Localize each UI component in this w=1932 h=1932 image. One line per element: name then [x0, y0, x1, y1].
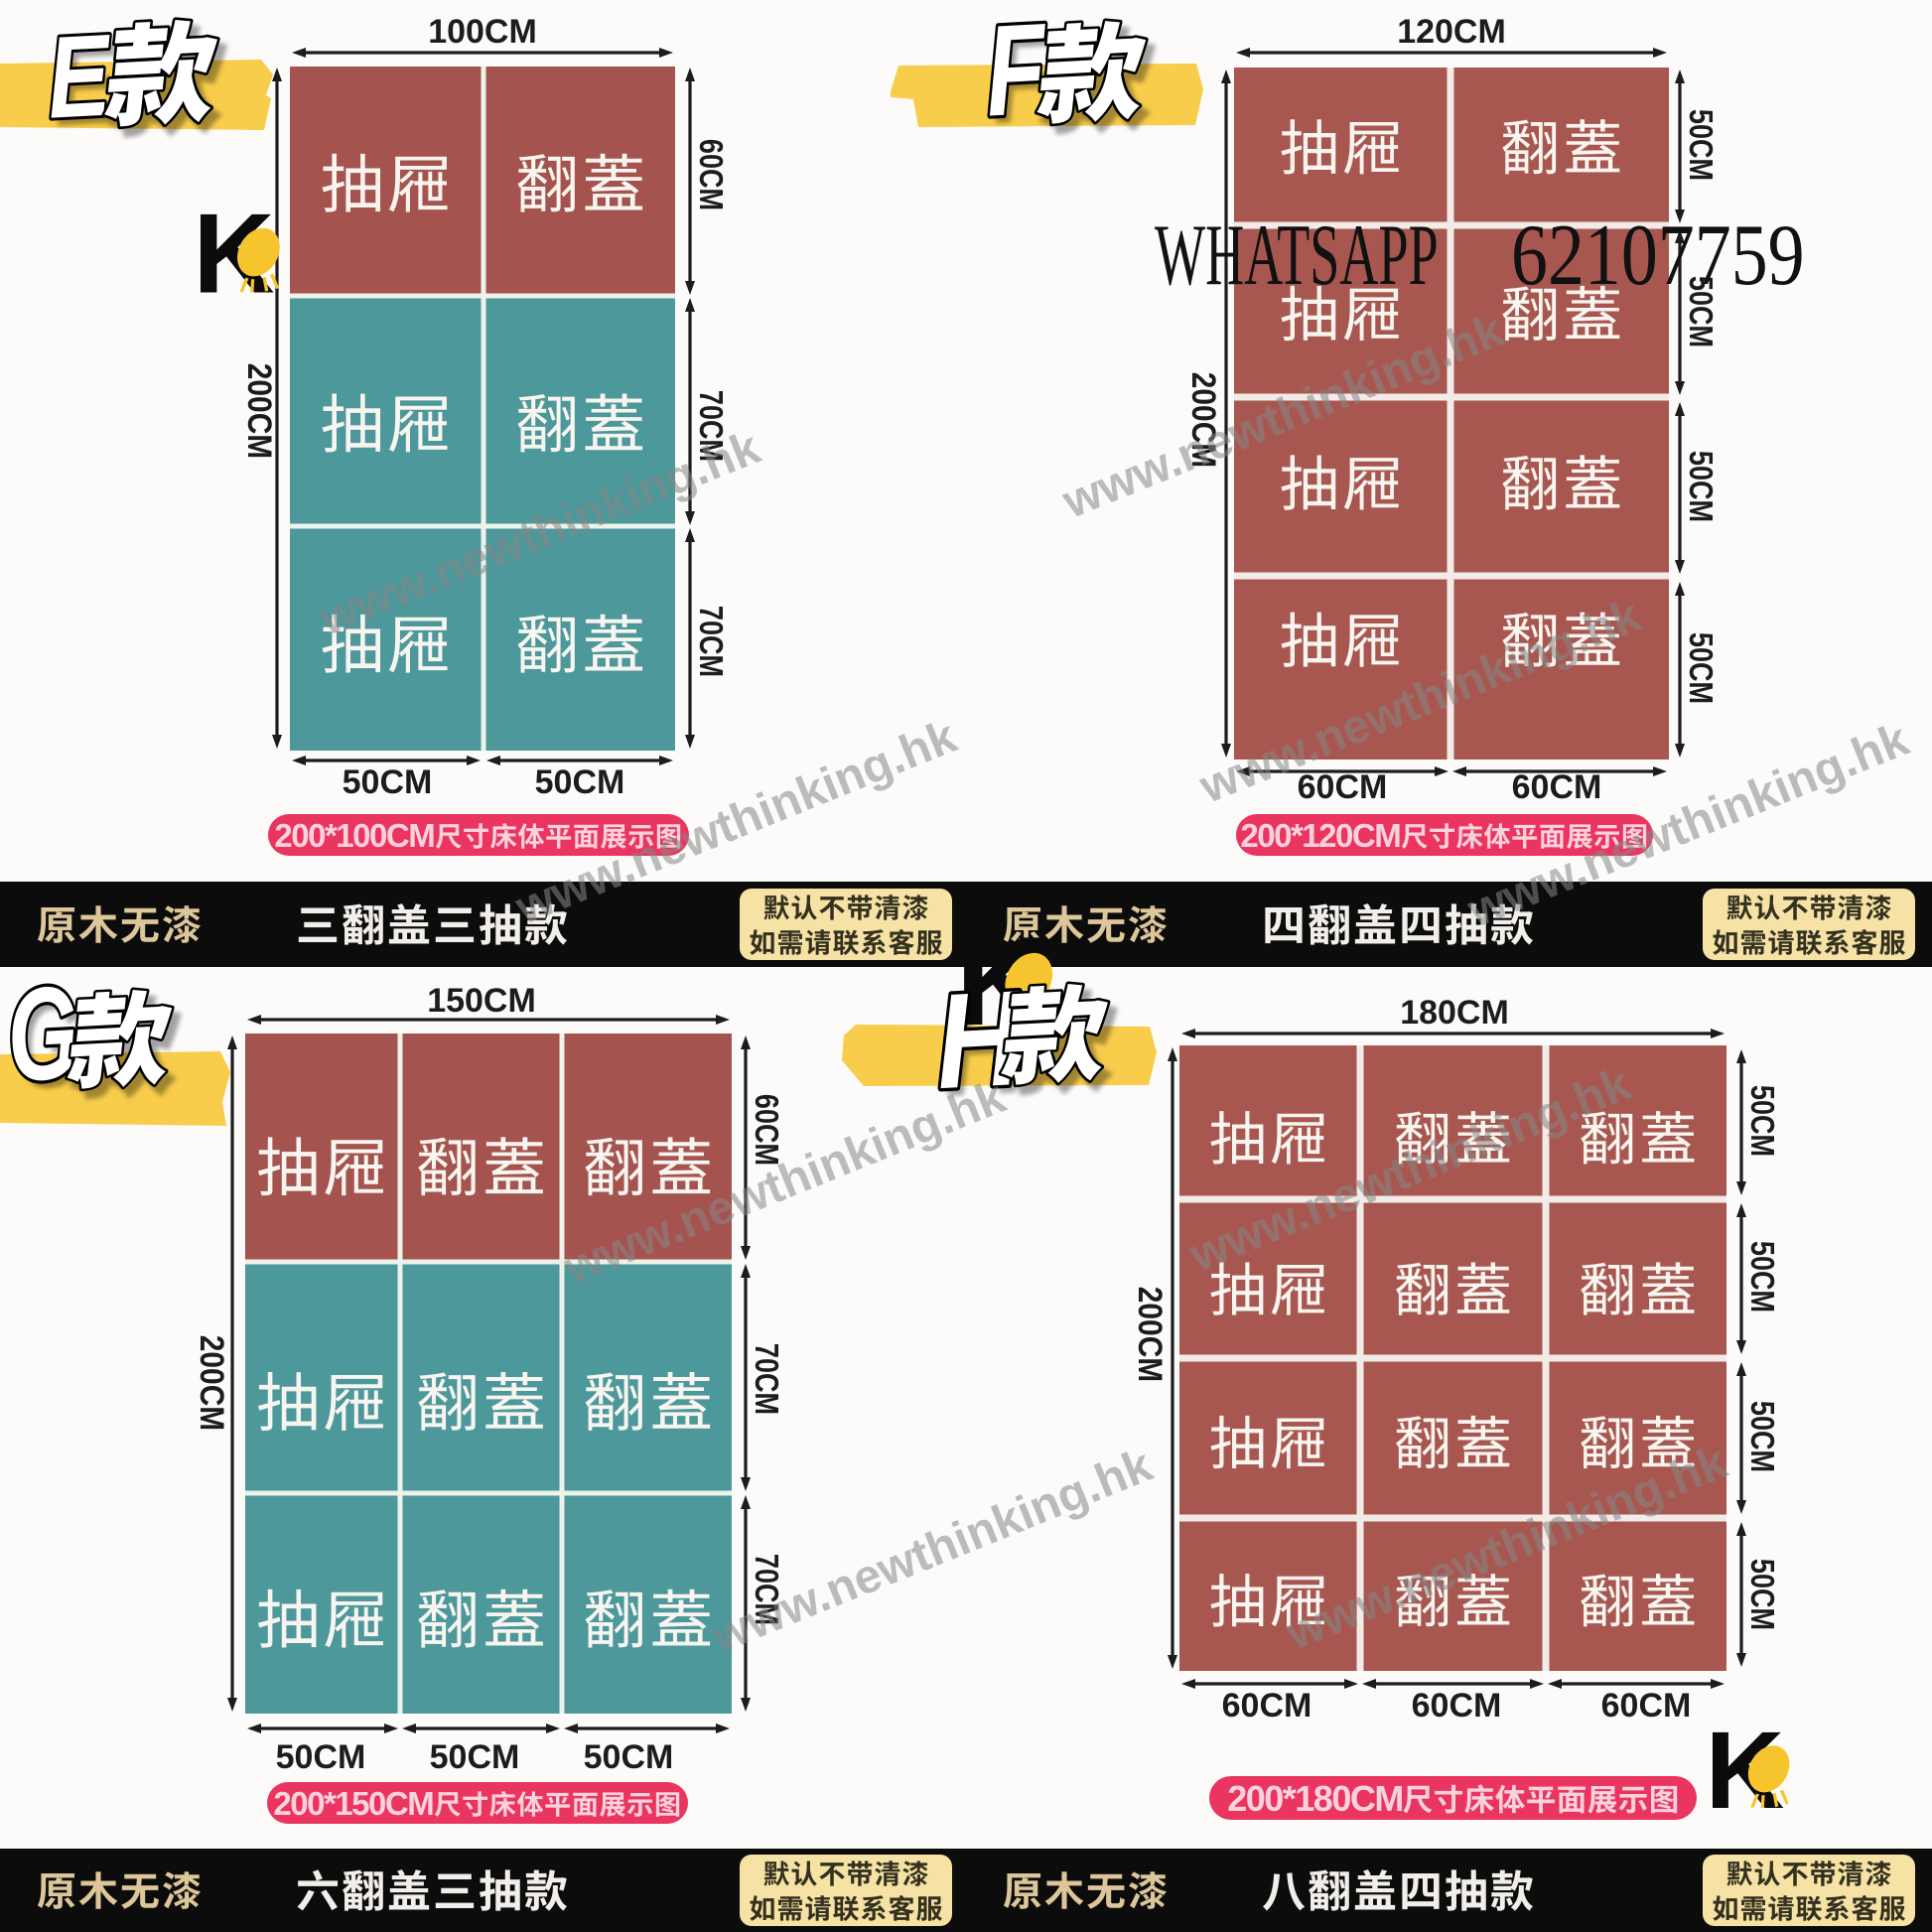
svg-text:www.newthinking.hk: www.newthinking.hk [703, 1439, 1160, 1664]
svg-text:200CM: 200CM [1132, 1287, 1170, 1382]
svg-text:50CM: 50CM [1743, 1559, 1779, 1630]
svg-text:50CM: 50CM [1682, 451, 1718, 522]
svg-text:200*150CM: 200*150CM [273, 1785, 433, 1822]
svg-text:200CM: 200CM [194, 1335, 231, 1431]
svg-text:50CM: 50CM [584, 1738, 674, 1776]
svg-text:60CM: 60CM [1412, 1687, 1502, 1725]
svg-text:200*180CM: 200*180CM [1227, 1778, 1403, 1819]
svg-text:50CM: 50CM [1743, 1085, 1779, 1157]
svg-text:70CM: 70CM [748, 1343, 783, 1415]
svg-text:G: G [4, 959, 81, 1110]
svg-text:50CM: 50CM [343, 763, 433, 801]
svg-text:62107759: 62107759 [1511, 207, 1805, 303]
svg-text:50CM: 50CM [430, 1738, 520, 1776]
svg-text:50CM: 50CM [1682, 632, 1718, 704]
svg-text:120CM: 120CM [1397, 13, 1506, 51]
svg-text:180CM: 180CM [1400, 994, 1509, 1032]
svg-text:WHATSAPP: WHATSAPP [1155, 207, 1439, 304]
svg-text:E: E [45, 11, 116, 144]
svg-text:50CM: 50CM [535, 763, 625, 801]
svg-text:150CM: 150CM [427, 982, 536, 1020]
svg-text:100CM: 100CM [428, 13, 537, 51]
svg-text:F: F [982, 0, 1051, 144]
svg-text:60CM: 60CM [1222, 1687, 1312, 1725]
svg-text:60CM: 60CM [692, 139, 728, 210]
svg-text:200CM: 200CM [241, 363, 279, 459]
svg-text:200*120CM: 200*120CM [1240, 817, 1400, 854]
svg-text:50CM: 50CM [276, 1738, 366, 1776]
svg-text:60CM: 60CM [1298, 768, 1388, 806]
svg-text:50CM: 50CM [1682, 109, 1718, 181]
svg-text:50CM: 50CM [1743, 1241, 1779, 1312]
svg-text:60CM: 60CM [748, 1094, 783, 1166]
svg-text:50CM: 50CM [1743, 1401, 1779, 1472]
svg-text:200*100CM: 200*100CM [274, 817, 434, 854]
svg-text:60CM: 60CM [1601, 1687, 1692, 1725]
svg-text:60CM: 60CM [1512, 768, 1602, 806]
svg-text:70CM: 70CM [692, 606, 728, 677]
